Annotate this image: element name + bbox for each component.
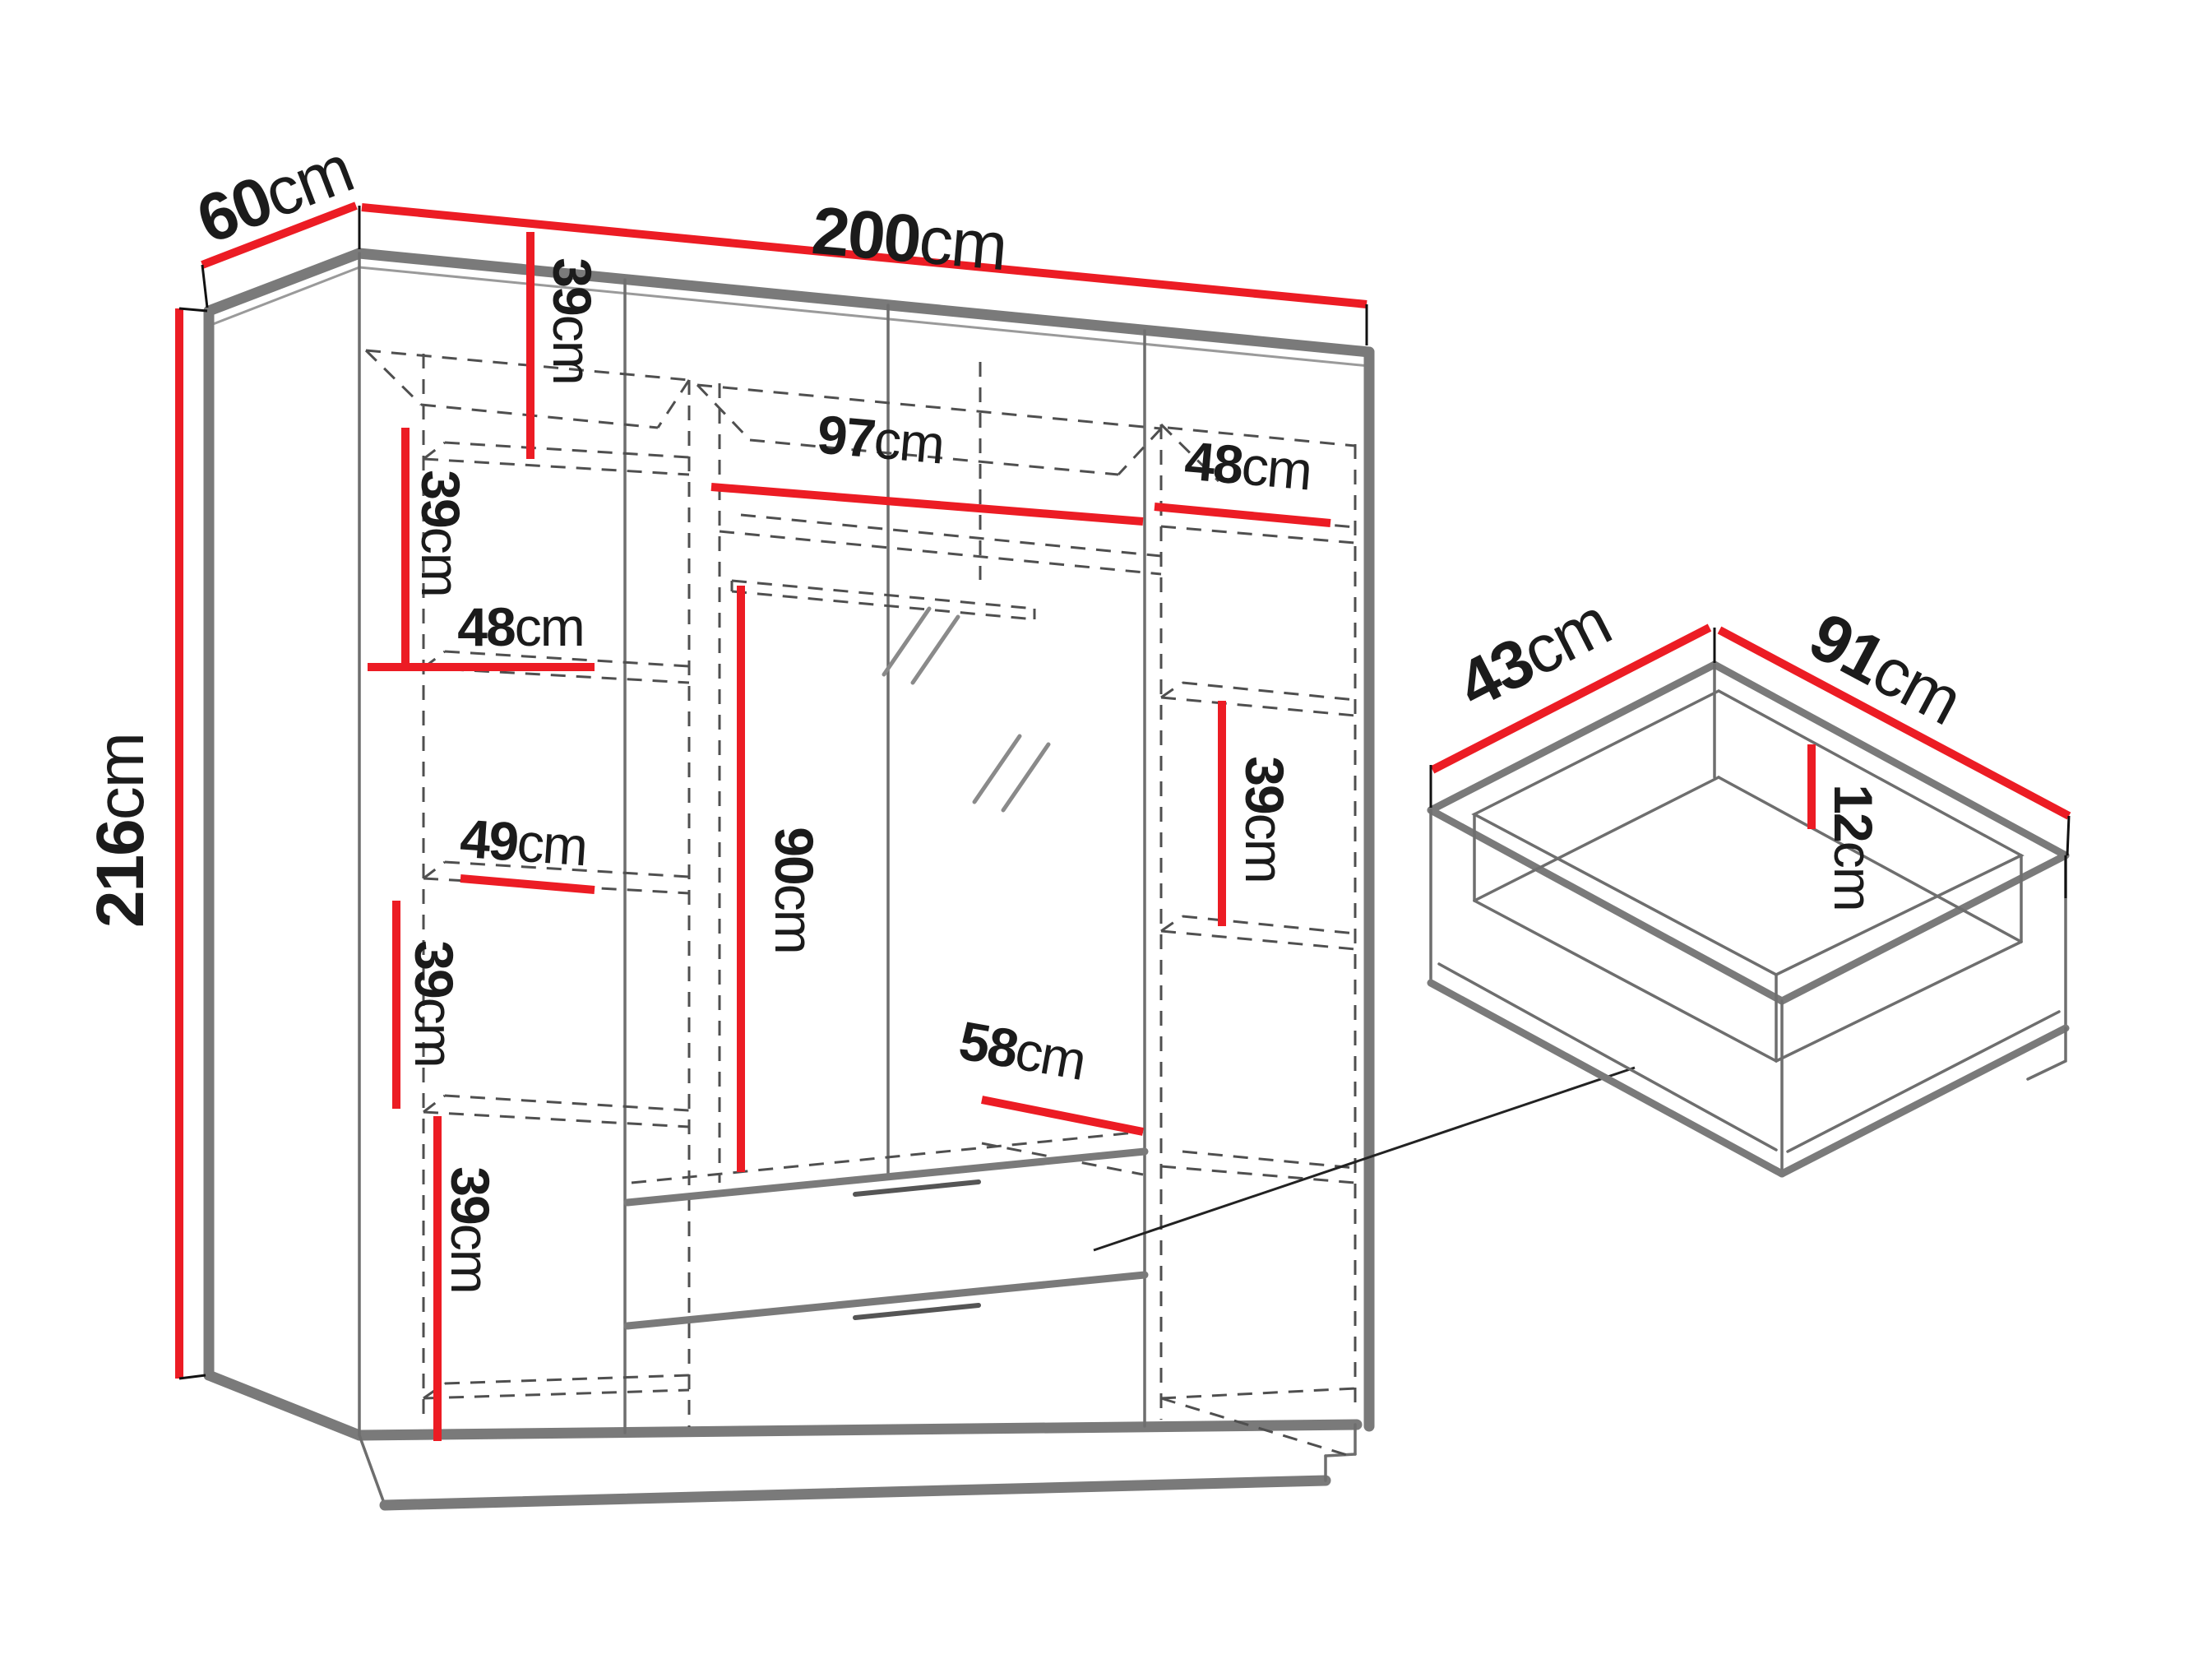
dim-height-number: 216 <box>83 820 158 928</box>
dim-width-unit: cm <box>916 202 1009 285</box>
dim-interior-48-right: 48cm <box>1182 430 1313 502</box>
dim-interior-58: 58cm <box>955 1010 1090 1092</box>
dim-97-number: 97 <box>815 404 877 470</box>
dim-39e-number: 39 <box>1234 756 1295 813</box>
dim-39e-unit: cm <box>1234 813 1295 883</box>
dim-height-216: 216cm <box>83 734 158 928</box>
dim-49-number: 49 <box>458 808 520 873</box>
dim-interior-39-right: 39cm <box>1234 756 1295 882</box>
dim-height-unit: cm <box>83 734 158 820</box>
dim-48b-unit: cm <box>1239 435 1313 502</box>
dim-width-number: 200 <box>809 193 923 277</box>
dim-39a-number: 39 <box>542 257 603 315</box>
dim-39d-unit: cm <box>440 1224 501 1293</box>
dim-interior-97: 97cm <box>815 404 946 475</box>
dimension-labels: 60cm 200cm 216cm 39cm 39cm 48cm 97cm 48c… <box>83 132 1973 1293</box>
dim-58-unit: cm <box>1011 1020 1090 1091</box>
dim-39b-number: 39 <box>410 470 471 527</box>
dim-drawer-height-12: 12cm <box>1823 784 1884 910</box>
dim-39c-number: 39 <box>404 940 465 998</box>
dim-48a-unit: cm <box>515 596 584 657</box>
dim-interior-39-top-mid: 39cm <box>542 257 603 383</box>
dim-90-unit: cm <box>764 884 825 953</box>
dim-58-number: 58 <box>955 1010 1021 1080</box>
dim-97-unit: cm <box>872 409 946 475</box>
interior-right-column-dashes <box>1161 424 1355 1457</box>
dim-interior-90: 90cm <box>764 827 825 952</box>
dim-12-number: 12 <box>1823 784 1884 841</box>
dim-39d-number: 39 <box>440 1166 501 1224</box>
dim-interior-39-left-upper: 39cm <box>410 470 471 595</box>
dim-width-200: 200cm <box>809 193 1009 285</box>
dim-90-number: 90 <box>764 827 825 883</box>
dim-39a-unit: cm <box>542 315 603 384</box>
wardrobe-drawer-fronts <box>627 1152 1145 1326</box>
mirror-hatch-icon <box>884 609 1048 810</box>
dim-48b-number: 48 <box>1182 430 1245 496</box>
dim-drawer-depth-43: 43cm <box>1446 585 1622 723</box>
drawer-detail-drawing <box>1431 665 2066 1174</box>
wardrobe-dimension-diagram: 60cm 200cm 216cm 39cm 39cm 48cm 97cm 48c… <box>0 0 2212 1659</box>
dim-interior-49: 49cm <box>458 808 588 878</box>
dim-39b-unit: cm <box>410 527 471 596</box>
dim-39c-unit: cm <box>404 998 465 1067</box>
diagram-canvas: 60cm 200cm 216cm 39cm 39cm 48cm 97cm 48c… <box>0 0 2212 1659</box>
dim-48a-number: 48 <box>457 596 515 657</box>
dim-interior-39-left-lower: 39cm <box>404 940 465 1066</box>
dim-interior-48-left: 48cm <box>457 596 583 657</box>
dim-12-unit: cm <box>1823 841 1884 911</box>
dim-49-unit: cm <box>516 812 589 878</box>
dim-interior-39-left-bottom: 39cm <box>440 1166 501 1292</box>
